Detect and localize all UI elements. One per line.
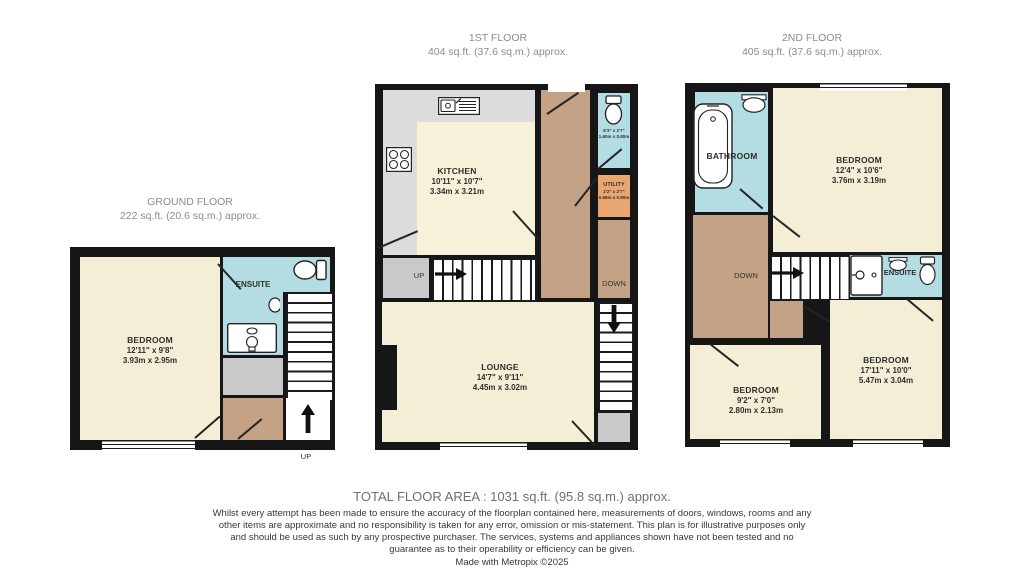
- up-arrow-icon: [435, 268, 467, 280]
- floor-area: 222 sq.ft. (20.6 sq.m.) approx.: [90, 209, 290, 223]
- room-dim-metric: 3.93m x 2.95m: [88, 356, 212, 366]
- room-label-sf-bathroom: BATHROOM: [693, 151, 771, 162]
- room-name: UTILITY: [596, 182, 632, 189]
- ground-floor-title: GROUND FLOOR 222 sq.ft. (20.6 sq.m.) app…: [90, 195, 290, 223]
- first-floor-title: 1ST FLOOR 404 sq.ft. (37.6 sq.m.) approx…: [398, 31, 598, 59]
- room-dim-metric: 2.80m x 2.13m: [695, 406, 817, 416]
- room-label-gf-bedroom: BEDROOM 12'11" x 9'8" 3.93m x 2.95m: [88, 335, 212, 367]
- floor-area: 405 sq.ft. (37.6 sq.m.) approx.: [712, 45, 912, 59]
- toilet-icon: [603, 95, 625, 127]
- room-name: LOUNGE: [438, 362, 562, 373]
- footer: TOTAL FLOOR AREA : 1031 sq.ft. (95.8 sq.…: [0, 489, 1024, 569]
- room-name: BEDROOM: [830, 355, 942, 366]
- bathtub-icon: [693, 103, 733, 189]
- room-name: ENSUITE: [875, 268, 925, 278]
- gf-hallway: [223, 398, 283, 440]
- window: [440, 442, 527, 450]
- room-label-sf-bedroom-small: BEDROOM 9'2" x 7'0" 2.80m x 2.13m: [695, 385, 817, 417]
- floor-name: 1ST FLOOR: [398, 31, 598, 45]
- chimney-breast: [380, 345, 397, 410]
- door-leaf: [803, 305, 830, 322]
- up-arrow-icon: [301, 404, 315, 434]
- toilet-icon: [292, 259, 328, 281]
- stairs-down-label: DOWN: [725, 271, 767, 280]
- stairs-up-label: UP: [408, 271, 430, 280]
- ground-floor-plan: BEDROOM 12'11" x 9'8" 3.93m x 2.95m ENSU…: [70, 247, 335, 450]
- gf-landing: [223, 358, 283, 395]
- room-dim-imperial: 12'11" x 9'8": [88, 346, 212, 356]
- sf-landing: [770, 300, 803, 338]
- total-floor-area: TOTAL FLOOR AREA : 1031 sq.ft. (95.8 sq.…: [0, 489, 1024, 504]
- front-door-opening: [548, 84, 585, 92]
- floorplan-page: GROUND FLOOR 222 sq.ft. (20.6 sq.m.) app…: [0, 0, 1024, 569]
- room-dim-imperial: 12'4" x 10'6": [797, 166, 921, 176]
- room-label-gf-ensuite: ENSUITE: [220, 280, 286, 290]
- room-label-sf-bedroom-top: BEDROOM 12'4" x 10'6" 3.76m x 3.19m: [797, 155, 921, 187]
- stairs-down-label: DOWN: [596, 279, 632, 288]
- room-label-ff-lounge: LOUNGE 14'7" x 9'11" 4.45m x 3.02m: [438, 362, 562, 394]
- second-floor-plan: BATHROOM BEDROOM 12'4" x 10'6" 3.76m x 3…: [685, 83, 950, 447]
- room-name: ENSUITE: [220, 280, 286, 290]
- room-dim-metric: 5.47m x 3.04m: [830, 376, 942, 386]
- room-name: BEDROOM: [695, 385, 817, 396]
- stairs-up-label: UP: [290, 452, 322, 461]
- ff-stairs-up: [432, 258, 537, 302]
- room-dim-imperial: 17'11" x 10'0": [830, 366, 942, 376]
- second-floor-title: 2ND FLOOR 405 sq.ft. (37.6 sq.m.) approx…: [712, 31, 912, 59]
- room-label-ff-wc: 5'3" x 2'7" 1.60m x 0.80m: [596, 128, 632, 140]
- room-dim-imperial: 10'11" x 10'7": [395, 177, 519, 187]
- floor-name: 2ND FLOOR: [712, 31, 912, 45]
- room-label-ff-utility: UTILITY 2'2" x 2'7" 0.66m x 0.80m: [596, 182, 632, 201]
- room-dim-metric: 3.76m x 3.19m: [797, 176, 921, 186]
- window: [820, 83, 907, 91]
- first-floor-plan: KITCHEN 10'11" x 10'7" 3.34m x 3.21m 5'3…: [375, 84, 638, 450]
- down-arrow-icon: [772, 267, 804, 279]
- room-dim-metric: 4.45m x 3.02m: [438, 383, 562, 393]
- credit-text: Made with Metropix ©2025: [0, 557, 1024, 569]
- window: [853, 439, 923, 447]
- room-name: BATHROOM: [693, 151, 771, 162]
- room-dim-metric: 3.34m x 3.21m: [395, 187, 519, 197]
- kitchen-sink-icon: [438, 97, 480, 115]
- room-name: BEDROOM: [797, 155, 921, 166]
- room-name: BEDROOM: [88, 335, 212, 346]
- gf-stairs: [286, 292, 334, 402]
- room-dim-metric: 0.66m x 0.80m: [596, 195, 632, 201]
- room-dim-imperial: 9'2" x 7'0": [695, 396, 817, 406]
- sink-icon: [266, 297, 280, 313]
- vanity-sink-icon: [227, 323, 277, 353]
- room-label-sf-ensuite: ENSUITE: [875, 268, 925, 278]
- disclaimer-text: Whilst every attempt has been made to en…: [212, 508, 812, 556]
- window: [102, 440, 195, 450]
- sink-icon: [741, 94, 767, 113]
- room-dim-imperial: 14'7" x 9'11": [438, 373, 562, 383]
- room-label-sf-bedroom-large: BEDROOM 17'11" x 10'0" 5.47m x 3.04m: [830, 355, 942, 387]
- ff-landing-lower: [598, 413, 630, 442]
- room-dim-metric: 1.60m x 0.80m: [596, 134, 632, 140]
- room-name: KITCHEN: [395, 166, 519, 177]
- window: [720, 439, 790, 447]
- floor-area: 404 sq.ft. (37.6 sq.m.) approx.: [398, 45, 598, 59]
- room-label-ff-kitchen: KITCHEN 10'11" x 10'7" 3.34m x 3.21m: [395, 166, 519, 198]
- floor-name: GROUND FLOOR: [90, 195, 290, 209]
- down-arrow-icon: [607, 305, 621, 333]
